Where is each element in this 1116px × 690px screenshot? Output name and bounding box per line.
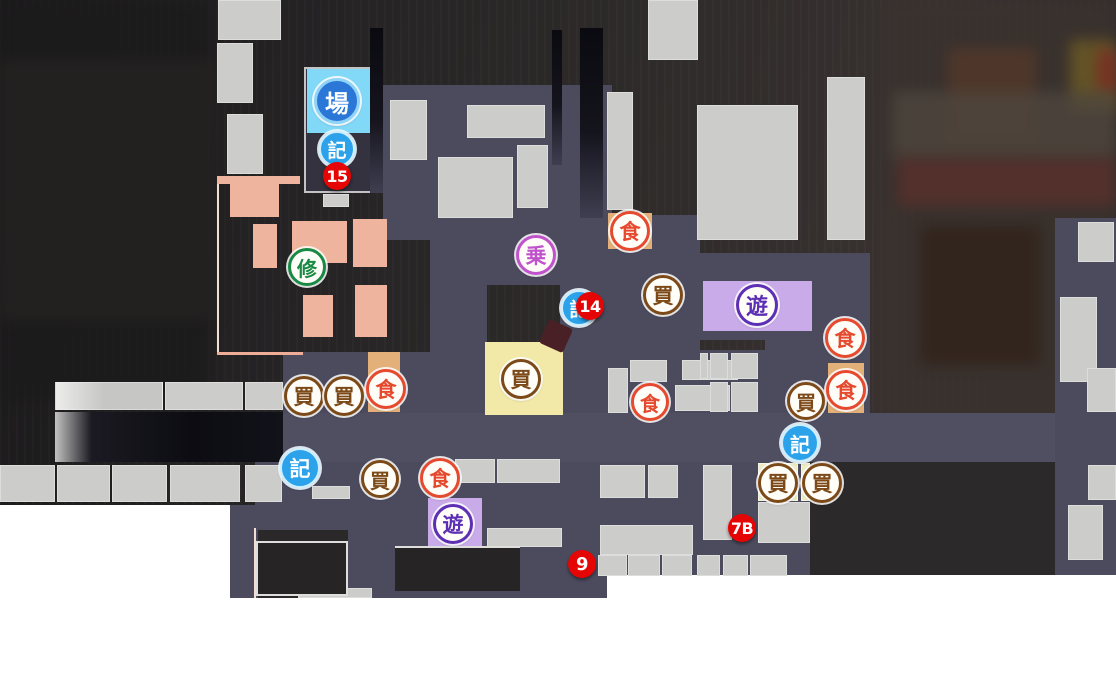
icon-glyph: 買 bbox=[511, 364, 532, 394]
building bbox=[438, 157, 513, 218]
building bbox=[710, 353, 728, 379]
shadow-building bbox=[580, 28, 603, 218]
building bbox=[827, 77, 865, 240]
icon-glyph: 場 bbox=[325, 84, 349, 119]
street bbox=[430, 240, 487, 415]
building bbox=[710, 382, 728, 412]
building bbox=[112, 465, 167, 502]
map-marker-7B[interactable]: 7B bbox=[728, 514, 756, 542]
building bbox=[390, 100, 427, 160]
shop-icon[interactable]: 買 bbox=[802, 463, 842, 503]
building bbox=[697, 105, 798, 240]
building bbox=[758, 502, 810, 543]
building bbox=[598, 555, 627, 576]
restaurant-icon[interactable]: 食 bbox=[825, 318, 865, 358]
unexplored-area bbox=[810, 462, 1055, 575]
icon-glyph: 遊 bbox=[443, 509, 464, 539]
building bbox=[1068, 505, 1103, 560]
building bbox=[731, 382, 758, 412]
main-street bbox=[283, 413, 1073, 462]
building bbox=[600, 465, 645, 498]
shop-icon[interactable]: 買 bbox=[787, 382, 825, 420]
background-photo-detail bbox=[920, 225, 1040, 365]
icon-glyph: 乗 bbox=[526, 240, 547, 270]
building bbox=[245, 382, 283, 410]
save-point-icon[interactable]: 記 bbox=[781, 424, 819, 462]
building bbox=[750, 555, 787, 576]
game-map: 場記修乗食買遊食食買記買買記買食買買食記買食遊15147B9 bbox=[0, 0, 1116, 690]
icon-glyph: 買 bbox=[294, 381, 315, 411]
building bbox=[55, 382, 163, 410]
building bbox=[1078, 222, 1114, 262]
building bbox=[487, 528, 562, 547]
building bbox=[723, 555, 748, 576]
building bbox=[170, 465, 240, 502]
icon-glyph: 食 bbox=[430, 463, 451, 493]
background-photo-detail bbox=[0, 60, 215, 320]
icon-glyph: 記 bbox=[790, 429, 810, 458]
building-pink-district bbox=[230, 184, 279, 217]
building bbox=[1087, 368, 1116, 412]
shadow-building bbox=[552, 30, 562, 165]
building-pink-district bbox=[253, 224, 277, 268]
shop-icon[interactable]: 買 bbox=[758, 463, 798, 503]
restaurant-icon[interactable]: 食 bbox=[420, 458, 460, 498]
restaurant-icon[interactable]: 食 bbox=[826, 370, 866, 410]
icon-glyph: 記 bbox=[327, 136, 346, 163]
district-boundary bbox=[217, 176, 219, 354]
shop-icon[interactable]: 買 bbox=[324, 376, 364, 416]
building bbox=[245, 465, 282, 502]
background-photo-detail bbox=[893, 92, 1116, 160]
shop-icon[interactable]: 買 bbox=[284, 376, 324, 416]
building bbox=[731, 353, 758, 379]
shop-icon[interactable]: 買 bbox=[643, 275, 683, 315]
icon-glyph: 食 bbox=[836, 375, 857, 405]
map-marker-14[interactable]: 14 bbox=[576, 292, 604, 320]
district-boundary bbox=[217, 352, 303, 355]
map-marker-15[interactable]: 15 bbox=[323, 162, 351, 190]
building-pink-district bbox=[217, 176, 300, 184]
building bbox=[0, 465, 55, 502]
background-photo-detail bbox=[1098, 50, 1116, 92]
shop-icon[interactable]: 買 bbox=[361, 460, 399, 498]
icon-glyph: 遊 bbox=[746, 289, 768, 321]
icon-glyph: 食 bbox=[640, 388, 660, 417]
building bbox=[323, 194, 349, 207]
icon-glyph: 食 bbox=[835, 323, 856, 353]
building bbox=[648, 465, 678, 498]
transport-icon[interactable]: 乗 bbox=[516, 235, 556, 275]
unexplored-area bbox=[256, 541, 348, 596]
building bbox=[517, 145, 548, 208]
building bbox=[648, 0, 698, 60]
building bbox=[497, 459, 560, 483]
building bbox=[600, 525, 693, 555]
building bbox=[630, 360, 667, 382]
building bbox=[607, 92, 633, 210]
icon-glyph: 買 bbox=[334, 381, 355, 411]
building bbox=[312, 486, 350, 499]
shadow-building bbox=[55, 412, 283, 462]
building-pink-district bbox=[303, 295, 333, 337]
building bbox=[217, 43, 253, 103]
building bbox=[227, 114, 263, 174]
background-photo-detail bbox=[898, 158, 1116, 206]
restaurant-icon[interactable]: 食 bbox=[610, 211, 650, 251]
building bbox=[628, 555, 660, 576]
amusement-icon[interactable]: 遊 bbox=[736, 284, 778, 326]
building-pink-district bbox=[355, 285, 387, 337]
building bbox=[165, 382, 243, 410]
restaurant-icon[interactable]: 食 bbox=[366, 369, 406, 409]
icon-glyph: 買 bbox=[370, 465, 390, 494]
building bbox=[467, 105, 545, 138]
unexplored-area bbox=[395, 546, 520, 591]
icon-glyph: 食 bbox=[376, 374, 397, 404]
icon-glyph: 食 bbox=[620, 216, 641, 246]
map-marker-9[interactable]: 9 bbox=[568, 550, 596, 578]
icon-glyph: 記 bbox=[290, 453, 311, 483]
restaurant-icon[interactable]: 食 bbox=[631, 383, 669, 421]
save-point-icon[interactable]: 記 bbox=[280, 448, 320, 488]
icon-glyph: 買 bbox=[653, 280, 674, 310]
training-icon[interactable]: 修 bbox=[288, 248, 326, 286]
icon-glyph: 修 bbox=[297, 253, 317, 282]
building bbox=[697, 555, 720, 576]
icon-glyph: 買 bbox=[768, 468, 789, 498]
building bbox=[218, 0, 281, 40]
building bbox=[1088, 465, 1116, 500]
building bbox=[700, 353, 708, 379]
building bbox=[608, 368, 628, 413]
amusement-icon[interactable]: 遊 bbox=[433, 504, 473, 544]
building bbox=[57, 465, 110, 502]
shop-icon[interactable]: 買 bbox=[501, 359, 541, 399]
icon-glyph: 買 bbox=[796, 387, 816, 416]
icon-glyph: 買 bbox=[812, 468, 833, 498]
building bbox=[662, 555, 692, 576]
building bbox=[455, 459, 495, 483]
building-pink-district bbox=[353, 219, 387, 267]
shadow-building bbox=[370, 28, 383, 193]
venue-icon[interactable]: 場 bbox=[314, 78, 360, 124]
